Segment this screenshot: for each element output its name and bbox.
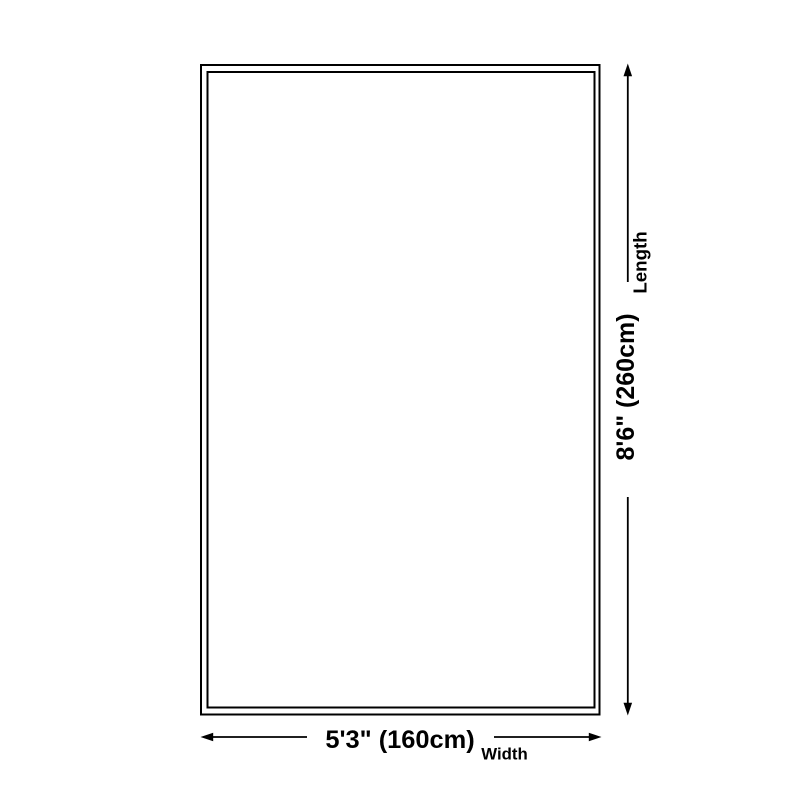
svg-text:Length: Length <box>629 231 650 293</box>
svg-text:8'6" (260cm): 8'6" (260cm) <box>612 313 640 460</box>
svg-text:5'3" (160cm): 5'3" (160cm) <box>325 726 474 754</box>
svg-text:Width: Width <box>481 745 527 764</box>
